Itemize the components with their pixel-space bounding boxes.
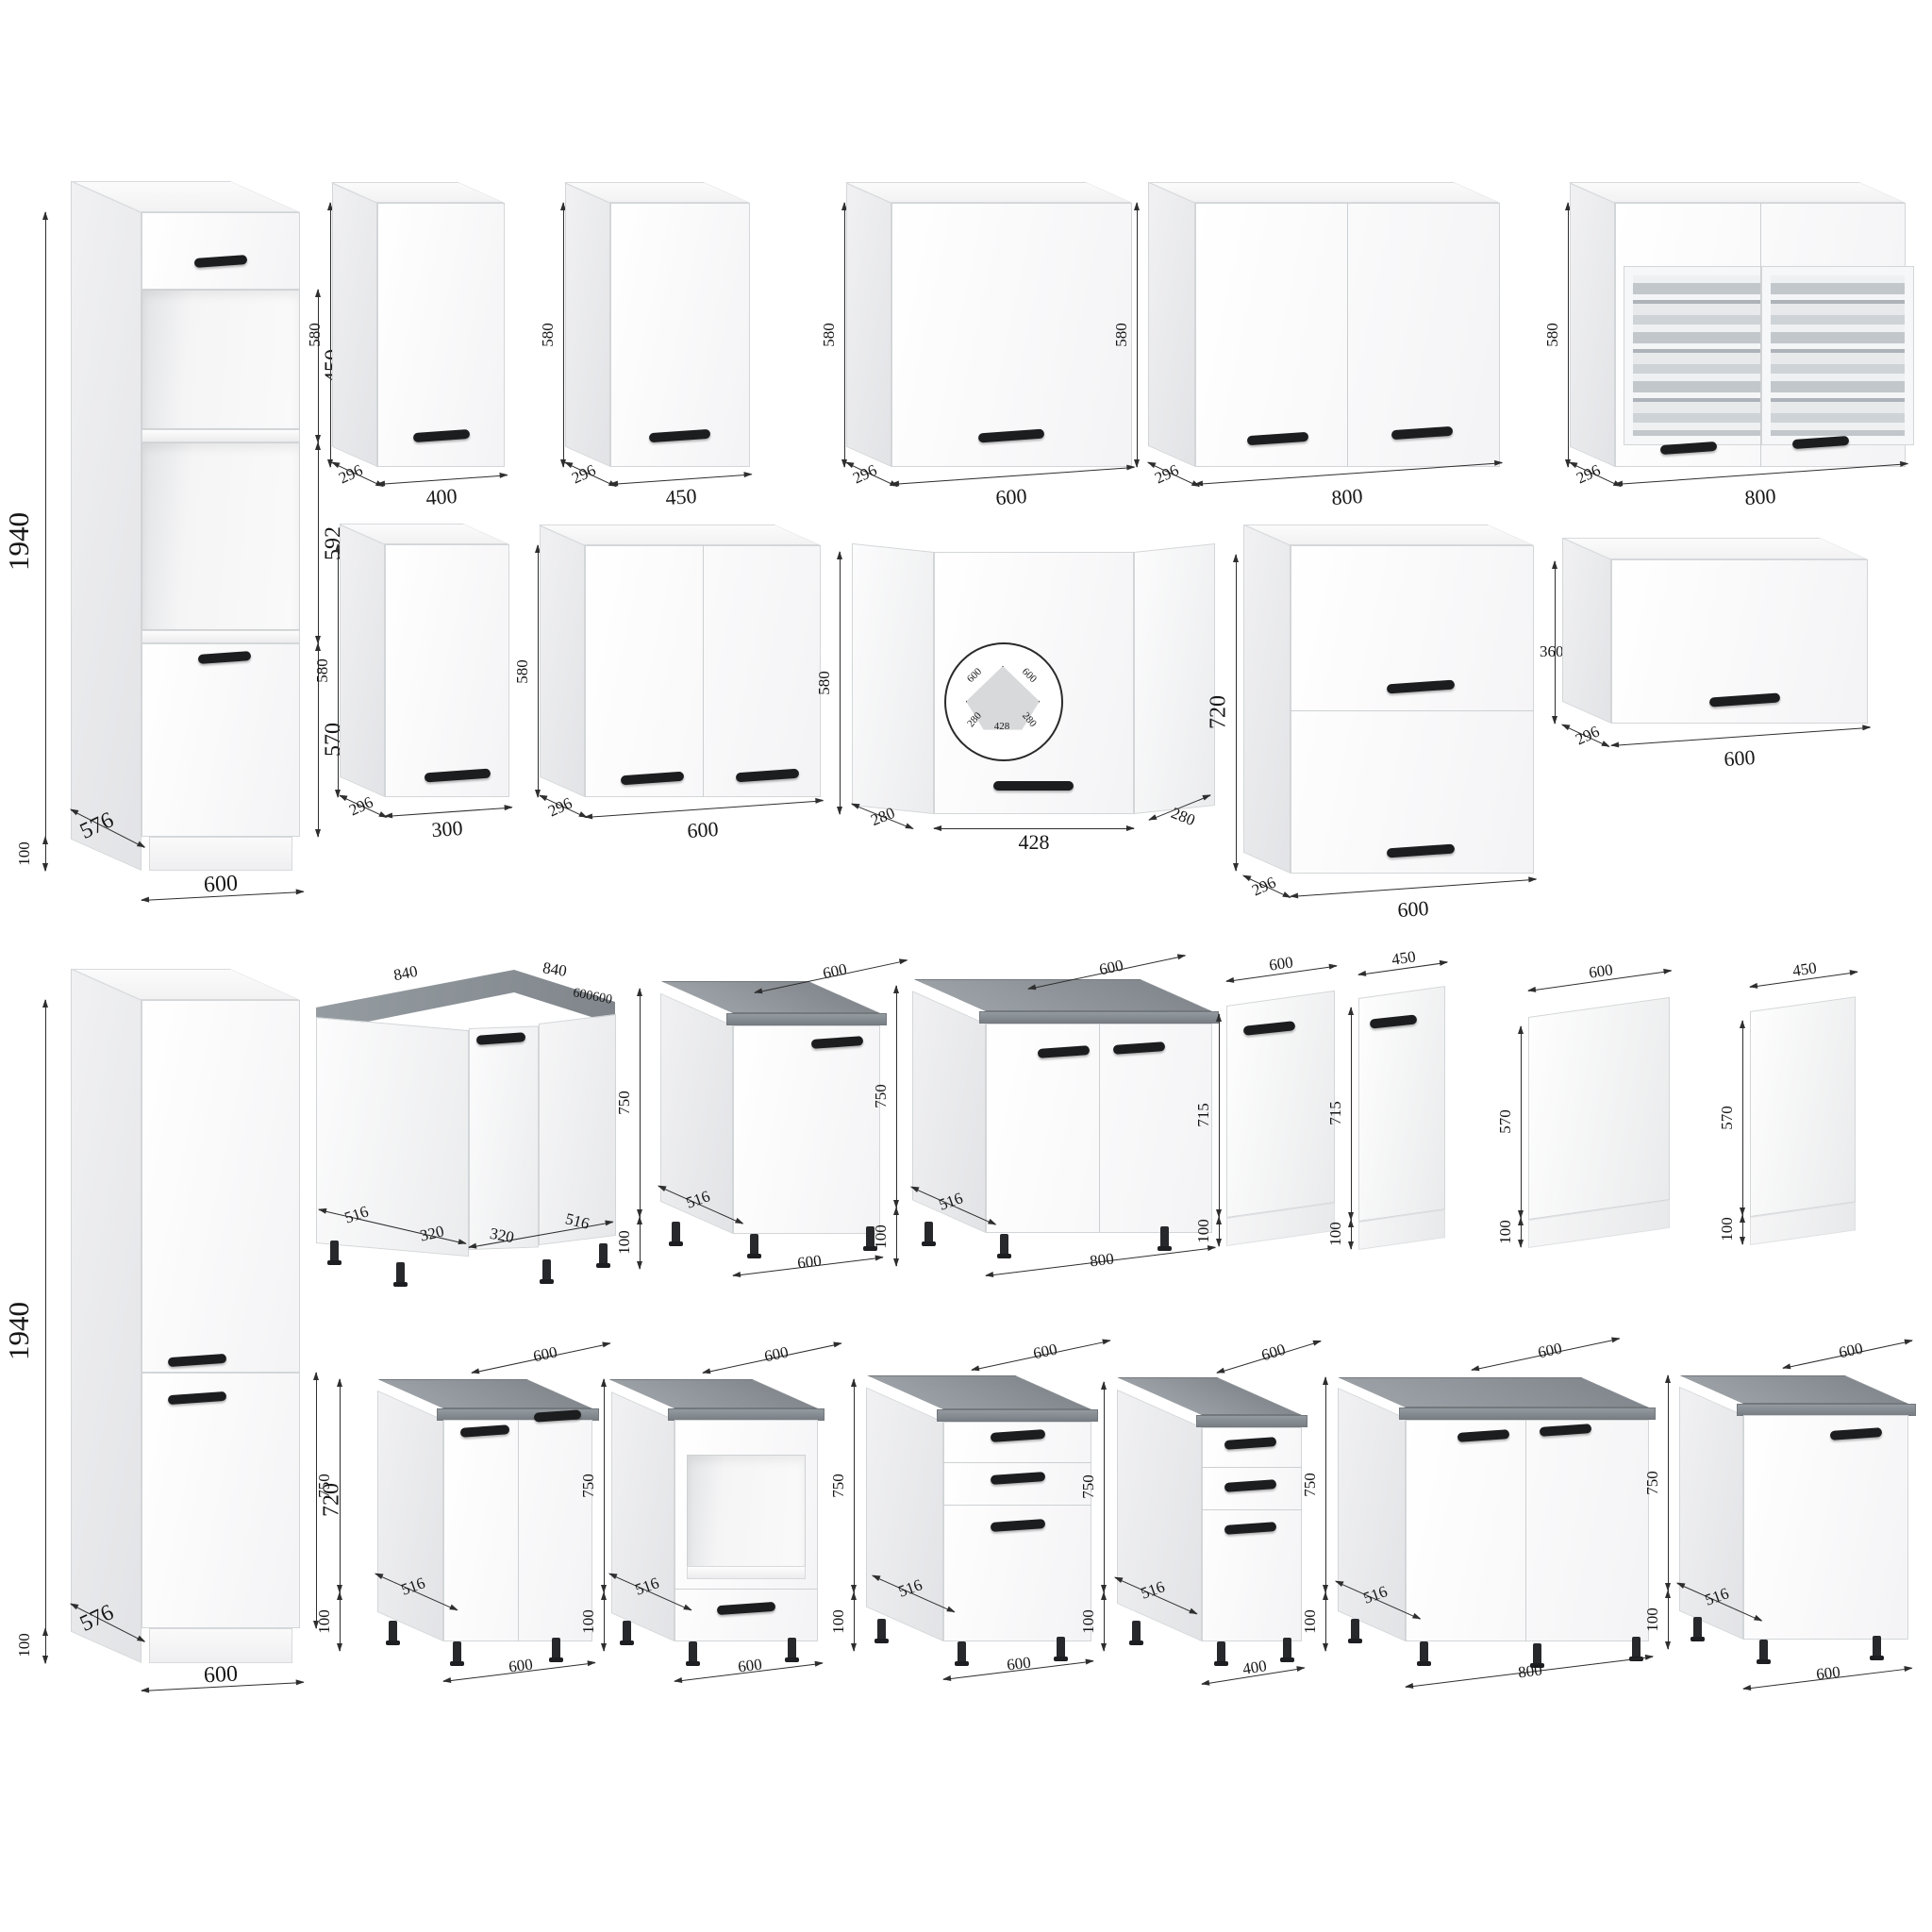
dim-label: 750: [1301, 1473, 1320, 1497]
dim-label: 600: [762, 1343, 790, 1367]
dim-line: [1568, 203, 1569, 467]
base-oven-side: [611, 1391, 675, 1641]
dim-label: 600: [531, 1343, 558, 1367]
base-600-door: [733, 1025, 880, 1234]
dim-label: 450: [1391, 947, 1417, 969]
wall-600-2flap-doors: [1291, 545, 1534, 874]
dim-label: 600: [1588, 960, 1614, 982]
dim-label: 800: [1331, 484, 1364, 510]
dim-label: 570: [1496, 1109, 1515, 1134]
wall-corner-right-panel: [1134, 543, 1215, 814]
base-600-drawers-front: [943, 1422, 1091, 1641]
dim-line: [1742, 1215, 1743, 1244]
dim-line: [1668, 1375, 1669, 1591]
dim-label: 296: [569, 461, 599, 489]
dim-label: 580: [1543, 323, 1562, 347]
base-400-drawers-side: [1117, 1390, 1202, 1641]
tall-oven-niche-upper: [142, 290, 300, 429]
dim-line: [934, 828, 1134, 829]
wall-400-side: [332, 183, 377, 467]
wall-600-2flap-top: [1244, 525, 1534, 545]
dim-label: 100: [15, 1633, 34, 1657]
leg: [599, 1243, 608, 1266]
dim-label: 800: [1089, 1250, 1115, 1272]
dim-line: [330, 203, 331, 467]
dim-label: 580: [1112, 323, 1131, 347]
dim-label: 800: [1744, 484, 1777, 510]
dim-label: 100: [1079, 1609, 1098, 1634]
leg: [330, 1241, 339, 1263]
oven-niche: [687, 1455, 806, 1579]
dim-label: 580: [815, 671, 834, 695]
dim-line: [1611, 727, 1870, 746]
wall-600-side: [846, 183, 891, 467]
dim-label: 600: [1097, 957, 1124, 980]
leg: [1057, 1637, 1065, 1659]
dim-line: [1325, 1377, 1326, 1592]
countertop-top: [914, 979, 1212, 1011]
dim-label: 296: [336, 461, 366, 489]
dim-label: 100: [15, 841, 34, 866]
wall-600-2flap-side: [1243, 525, 1291, 874]
dim-label: 600: [737, 1656, 763, 1677]
dim-line: [338, 544, 339, 797]
dim-label: 580: [513, 659, 532, 684]
dim-line: [45, 212, 46, 871]
dim-label: 580: [306, 323, 325, 347]
dim-label: 750: [829, 1474, 848, 1498]
dim-label: 800: [1517, 1661, 1543, 1683]
door-split-line: [1760, 203, 1761, 467]
leg: [1160, 1226, 1169, 1249]
wall-300-side: [340, 525, 385, 797]
wall-600-2door-top: [539, 525, 821, 545]
leg: [1759, 1640, 1768, 1662]
tall-fridge-upper-door: [142, 1000, 300, 1373]
base-800-2door-doors: [1406, 1420, 1649, 1641]
dim-label: 570: [1718, 1106, 1737, 1130]
wall-800-top: [1149, 182, 1500, 203]
dim-line: [896, 1207, 897, 1266]
dim-label: 296: [545, 794, 575, 822]
dim-line: [45, 1000, 46, 1663]
dim-label: 600: [821, 960, 848, 984]
door-split-line: [1291, 710, 1534, 711]
dim-line: [840, 552, 841, 814]
base-corner-left-face: [316, 1017, 469, 1257]
dim-line: [340, 1592, 341, 1651]
countertop-edge: [1196, 1415, 1307, 1427]
leg: [453, 1641, 461, 1664]
dim-label: 296: [1152, 461, 1182, 489]
dim-label: 400: [1241, 1657, 1268, 1679]
tall-oven-niche-lower: [142, 442, 300, 630]
dim-label: 600: [1006, 1654, 1032, 1675]
dim-label: 600: [796, 1252, 823, 1274]
base-400-drawers-front: [1202, 1427, 1302, 1641]
wall-600-2door-side: [540, 525, 585, 797]
dim-label: 600: [1815, 1663, 1841, 1685]
dim-line: [1291, 879, 1536, 897]
tall-oven-door: [142, 643, 300, 837]
dim-label: 600: [1397, 896, 1430, 923]
leg: [1351, 1619, 1359, 1641]
dim-label: 1940: [2, 512, 36, 571]
wall-450-side: [565, 183, 610, 467]
base-corner-door: [469, 1025, 539, 1250]
dim-label: 720: [1207, 695, 1232, 729]
dim-label: 100: [829, 1609, 848, 1634]
dim-line: [896, 986, 897, 1207]
leg: [788, 1638, 796, 1660]
leg: [1632, 1637, 1641, 1659]
door-handle: [993, 781, 1074, 791]
dim-label: 600: [1724, 745, 1757, 772]
side-panel-450: [1750, 996, 1856, 1217]
dim-label: 600: [203, 872, 238, 899]
dim-label: 100: [1718, 1217, 1737, 1241]
door-split-line: [518, 1420, 519, 1641]
dim-label: 100: [872, 1224, 891, 1249]
dim-line: [563, 203, 564, 467]
dim-label: 750: [1079, 1474, 1098, 1499]
dim-label: 750: [615, 1091, 634, 1115]
dim-line: [604, 1379, 605, 1592]
dim-line: [340, 1379, 341, 1592]
dim-label: 580: [820, 323, 839, 347]
glass-door: [1624, 267, 1775, 444]
wall-400-door: [377, 203, 505, 467]
door-split-line: [703, 545, 704, 797]
dim-line: [45, 837, 46, 871]
leg: [689, 1641, 697, 1664]
shelf: [142, 630, 300, 643]
side-panel-600: [1528, 997, 1670, 1220]
dim-label: 580: [313, 658, 332, 683]
dim-line: [316, 1373, 317, 1628]
dim-label: 450: [665, 484, 698, 510]
dim-label: 600: [1837, 1340, 1864, 1363]
dim-line: [1742, 1021, 1743, 1215]
leg: [552, 1638, 560, 1660]
countertop-top: [1338, 1377, 1649, 1407]
wall-600-door: [891, 203, 1132, 467]
wall-600-flap-side: [1562, 538, 1611, 724]
dim-line: [640, 989, 641, 1217]
dim-line: [1521, 1026, 1522, 1218]
countertop-edge: [979, 1011, 1219, 1024]
tall-fridge-lower-door: [142, 1373, 300, 1628]
dim-label: 100: [1643, 1607, 1662, 1632]
dim-line: [1219, 1217, 1220, 1246]
dim-label: 100: [1496, 1220, 1515, 1244]
dim-label: 600: [1536, 1340, 1563, 1363]
dim-line: [854, 1379, 855, 1592]
dim-label: 840: [541, 958, 568, 981]
tall-oven-side: [71, 181, 142, 871]
leg: [924, 1222, 933, 1244]
drawer-split-line: [943, 1505, 1091, 1506]
dim-line: [891, 467, 1134, 485]
wall-800-glass-side: [1570, 183, 1615, 467]
dim-label: 296: [1573, 723, 1603, 750]
dim-line: [1351, 1008, 1352, 1220]
dim-label: 296: [1574, 461, 1604, 489]
dim-label: 750: [579, 1474, 598, 1498]
leg: [1000, 1234, 1008, 1257]
dim-label: 600: [1031, 1341, 1058, 1364]
leg: [396, 1262, 405, 1285]
glass-door: [1762, 267, 1913, 444]
cabinet-dimensions-diagram: 1940 450 592 570 100 576 600 580 296 400…: [0, 0, 1932, 1932]
wall-600-flap-top: [1562, 538, 1868, 559]
dim-label: 580: [539, 323, 558, 347]
dim-line: [377, 475, 508, 485]
dim-label: 600: [1268, 953, 1294, 974]
shelf: [142, 429, 300, 442]
dim-line: [1219, 1014, 1220, 1217]
dim-label: 750: [315, 1474, 334, 1498]
plinth: [149, 1628, 292, 1663]
dim-label: 600: [687, 817, 720, 843]
dim-label: 100: [579, 1609, 598, 1634]
wall-800-side: [1148, 182, 1195, 467]
dim-line: [585, 800, 823, 818]
dim-line: [610, 475, 752, 485]
dim-label: 600: [203, 1662, 238, 1690]
dim-line: [854, 1592, 855, 1651]
dim-label: 1940: [2, 1302, 36, 1360]
plinth: [149, 837, 292, 871]
dim-label: 750: [1643, 1471, 1662, 1495]
dim-line: [640, 1217, 641, 1269]
dim-label: 100: [1194, 1219, 1213, 1243]
door-split-line: [1099, 1024, 1100, 1233]
dim-label: 840: [392, 962, 420, 985]
dim-line: [1104, 1382, 1105, 1592]
dim-line: [1668, 1591, 1669, 1649]
dim-line: [1137, 203, 1138, 467]
dim-label: 100: [315, 1609, 334, 1634]
dim-line: [1104, 1592, 1105, 1651]
leg: [672, 1222, 680, 1244]
wall-600-top: [845, 182, 1132, 203]
countertop-top: [1680, 1375, 1908, 1404]
dim-label: 296: [1249, 874, 1279, 901]
dim-label: 750: [872, 1084, 891, 1108]
shelf: [687, 1566, 806, 1579]
wall-300-door: [385, 544, 509, 797]
dim-label: 360: [1540, 642, 1564, 661]
leg: [1217, 1641, 1225, 1664]
dim-label: 428: [1019, 830, 1050, 855]
dim-label: 428: [994, 721, 1010, 732]
leg: [1873, 1636, 1881, 1658]
dim-label: 715: [1326, 1101, 1345, 1125]
dim-line: [1236, 555, 1237, 871]
leg: [623, 1621, 631, 1643]
leg: [542, 1259, 551, 1282]
dim-label: 296: [346, 793, 376, 821]
dim-line: [604, 1592, 605, 1651]
dim-label: 296: [850, 461, 880, 489]
tall-oven-drawer-front: [142, 212, 300, 290]
drawer-split-line: [675, 1589, 818, 1590]
dim-label: 715: [1194, 1103, 1213, 1127]
dim-line: [318, 290, 319, 442]
leg: [1693, 1617, 1702, 1640]
dim-label: 400: [425, 484, 458, 510]
leg: [389, 1621, 397, 1643]
drawer-split-line: [943, 1462, 1091, 1463]
dim-label: 600: [995, 484, 1028, 510]
dim-label: 600: [508, 1656, 534, 1677]
tall-fridge-side: [71, 969, 142, 1663]
base-600-door-door: [1743, 1415, 1908, 1640]
leg: [958, 1641, 966, 1664]
wall-450-door: [610, 203, 750, 467]
leg: [1420, 1641, 1428, 1664]
leg: [750, 1234, 758, 1257]
leg: [877, 1619, 886, 1641]
leg: [1283, 1638, 1291, 1660]
dim-line: [385, 808, 512, 817]
base-corner-right-face: [539, 1014, 616, 1245]
leg: [1132, 1621, 1141, 1643]
wall-corner-left-panel: [852, 543, 934, 814]
dim-line: [45, 1628, 46, 1663]
dim-line: [318, 442, 319, 643]
dim-line: [538, 545, 539, 797]
countertop-edge: [726, 1013, 887, 1025]
dim-label: 600: [1259, 1341, 1288, 1366]
dim-label: 450: [1791, 958, 1818, 980]
dim-label: 300: [431, 816, 464, 842]
base-600-2door-side: [377, 1391, 443, 1641]
base-600-drawers-side: [866, 1387, 943, 1641]
door-split-line: [1347, 203, 1348, 467]
countertop-edge: [937, 1409, 1098, 1422]
dim-label: 100: [615, 1230, 634, 1255]
dim-line: [1521, 1218, 1522, 1247]
wall-800-glass-top: [1569, 182, 1906, 203]
dim-line: [1351, 1220, 1352, 1249]
drawer-split-line: [1202, 1467, 1302, 1468]
countertop-edge: [1399, 1407, 1656, 1420]
dim-line: [844, 203, 845, 467]
dim-label: 100: [1326, 1222, 1345, 1246]
door-split-line: [1525, 1420, 1526, 1641]
dim-line: [1325, 1592, 1326, 1651]
dim-label: 100: [1301, 1609, 1320, 1634]
drawer-split-line: [1202, 1509, 1302, 1510]
